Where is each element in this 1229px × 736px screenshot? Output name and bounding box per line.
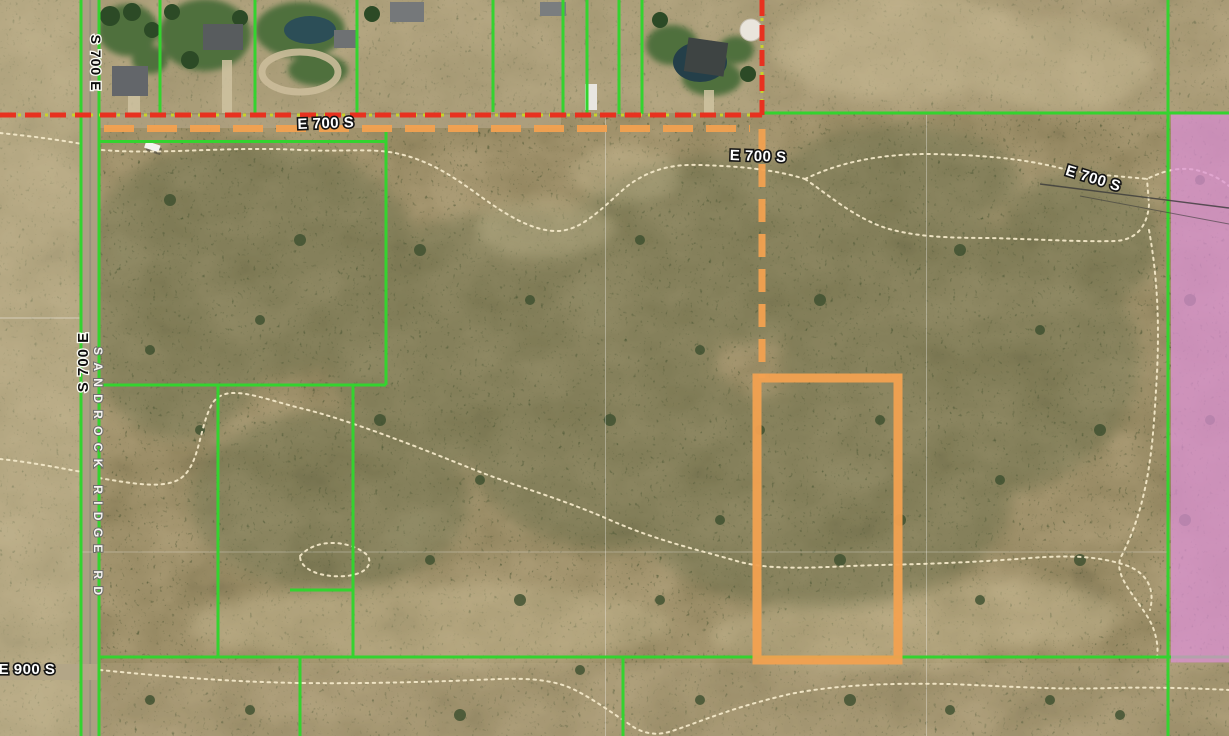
zoning-overlay-pink xyxy=(1171,115,1229,663)
satellite-basemap xyxy=(0,0,1229,736)
road-label-e700s-mid: E 700 S xyxy=(729,147,786,166)
road-label-e700s-west: E 700 S xyxy=(297,114,354,133)
satellite-map-canvas[interactable]: S 700 E SANDROCK RIDGE RD S 700 E E 700 … xyxy=(0,0,1229,736)
road-label-s700e-mid: S 700 E xyxy=(75,332,92,392)
road-label-s700e-top: S 700 E xyxy=(88,35,104,92)
round-pool xyxy=(740,19,762,41)
pond xyxy=(284,16,336,44)
road-label-e900s: E 900 S xyxy=(0,661,55,678)
map-viewport[interactable]: S 700 E SANDROCK RIDGE RD S 700 E E 700 … xyxy=(0,0,1229,736)
